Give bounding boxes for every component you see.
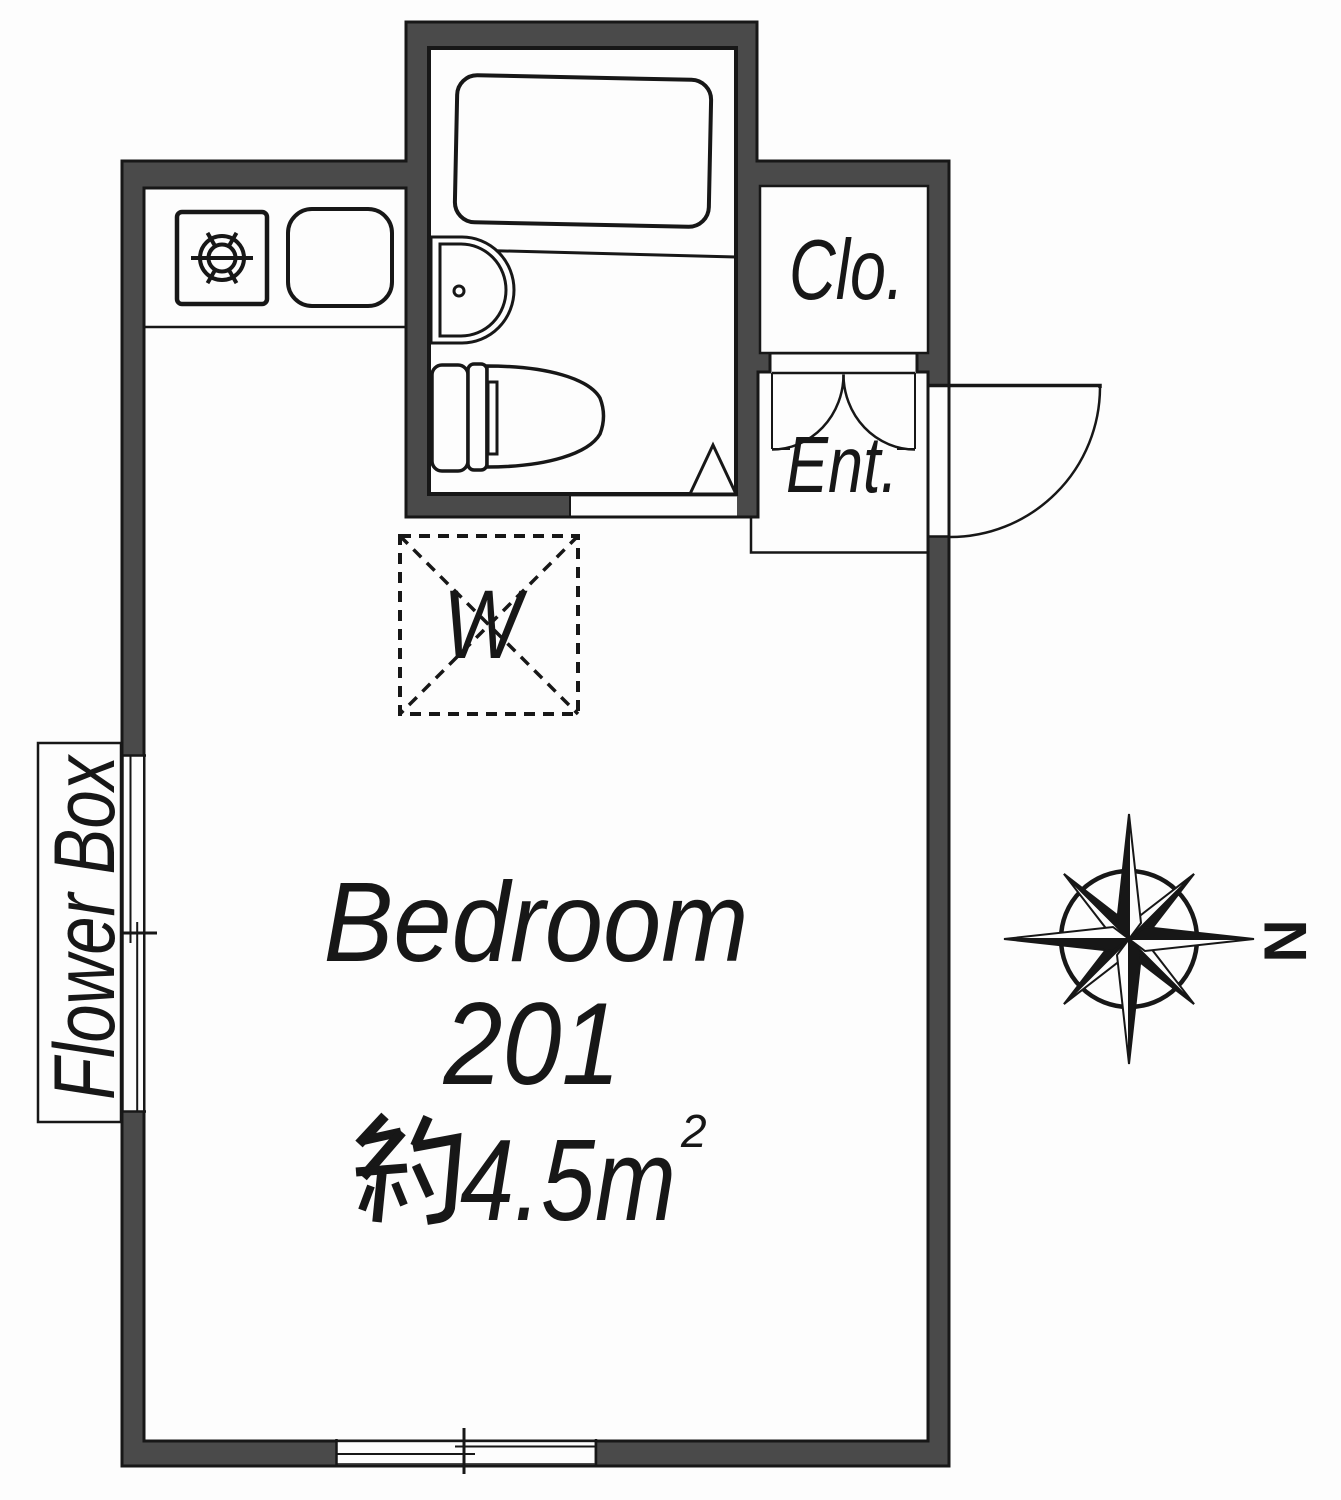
svg-text:2: 2	[680, 1105, 707, 1157]
svg-text:Ent.: Ent.	[786, 420, 898, 509]
svg-text:Bedroom: Bedroom	[324, 859, 749, 985]
svg-text:Flower Box: Flower Box	[37, 754, 133, 1100]
svg-text:N: N	[1252, 919, 1319, 962]
svg-text:4.5m: 4.5m	[460, 1115, 676, 1245]
svg-text:201: 201	[443, 978, 621, 1109]
svg-text:Clo.: Clo.	[789, 223, 904, 318]
svg-text:W: W	[443, 570, 528, 679]
